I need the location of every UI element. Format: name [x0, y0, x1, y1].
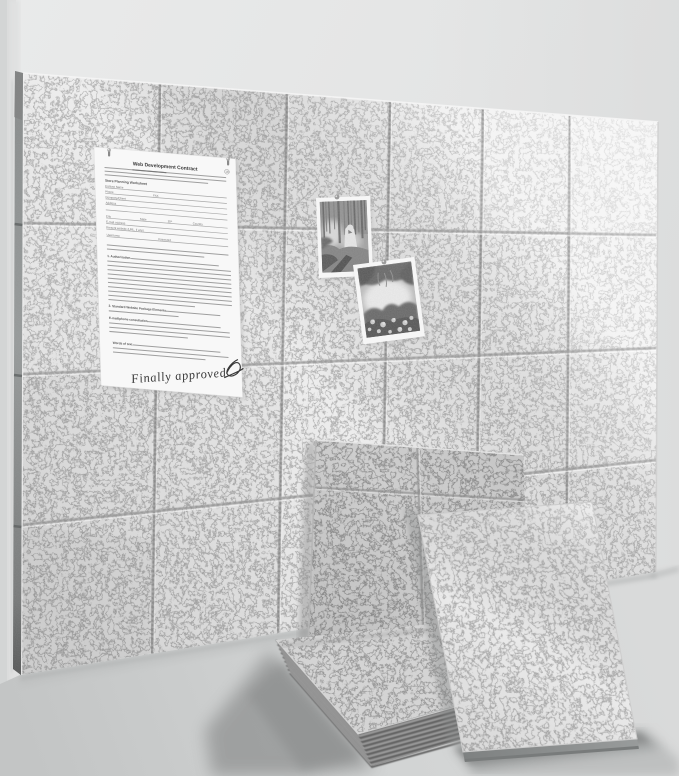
svg-text:Phone: Phone — [105, 189, 114, 194]
svg-text:FAX: FAX — [153, 194, 159, 198]
svg-text:18: 18 — [225, 170, 229, 174]
svg-text:City: City — [106, 214, 112, 218]
svg-text:State: State — [140, 217, 147, 222]
svg-text:ZIP: ZIP — [168, 219, 173, 223]
